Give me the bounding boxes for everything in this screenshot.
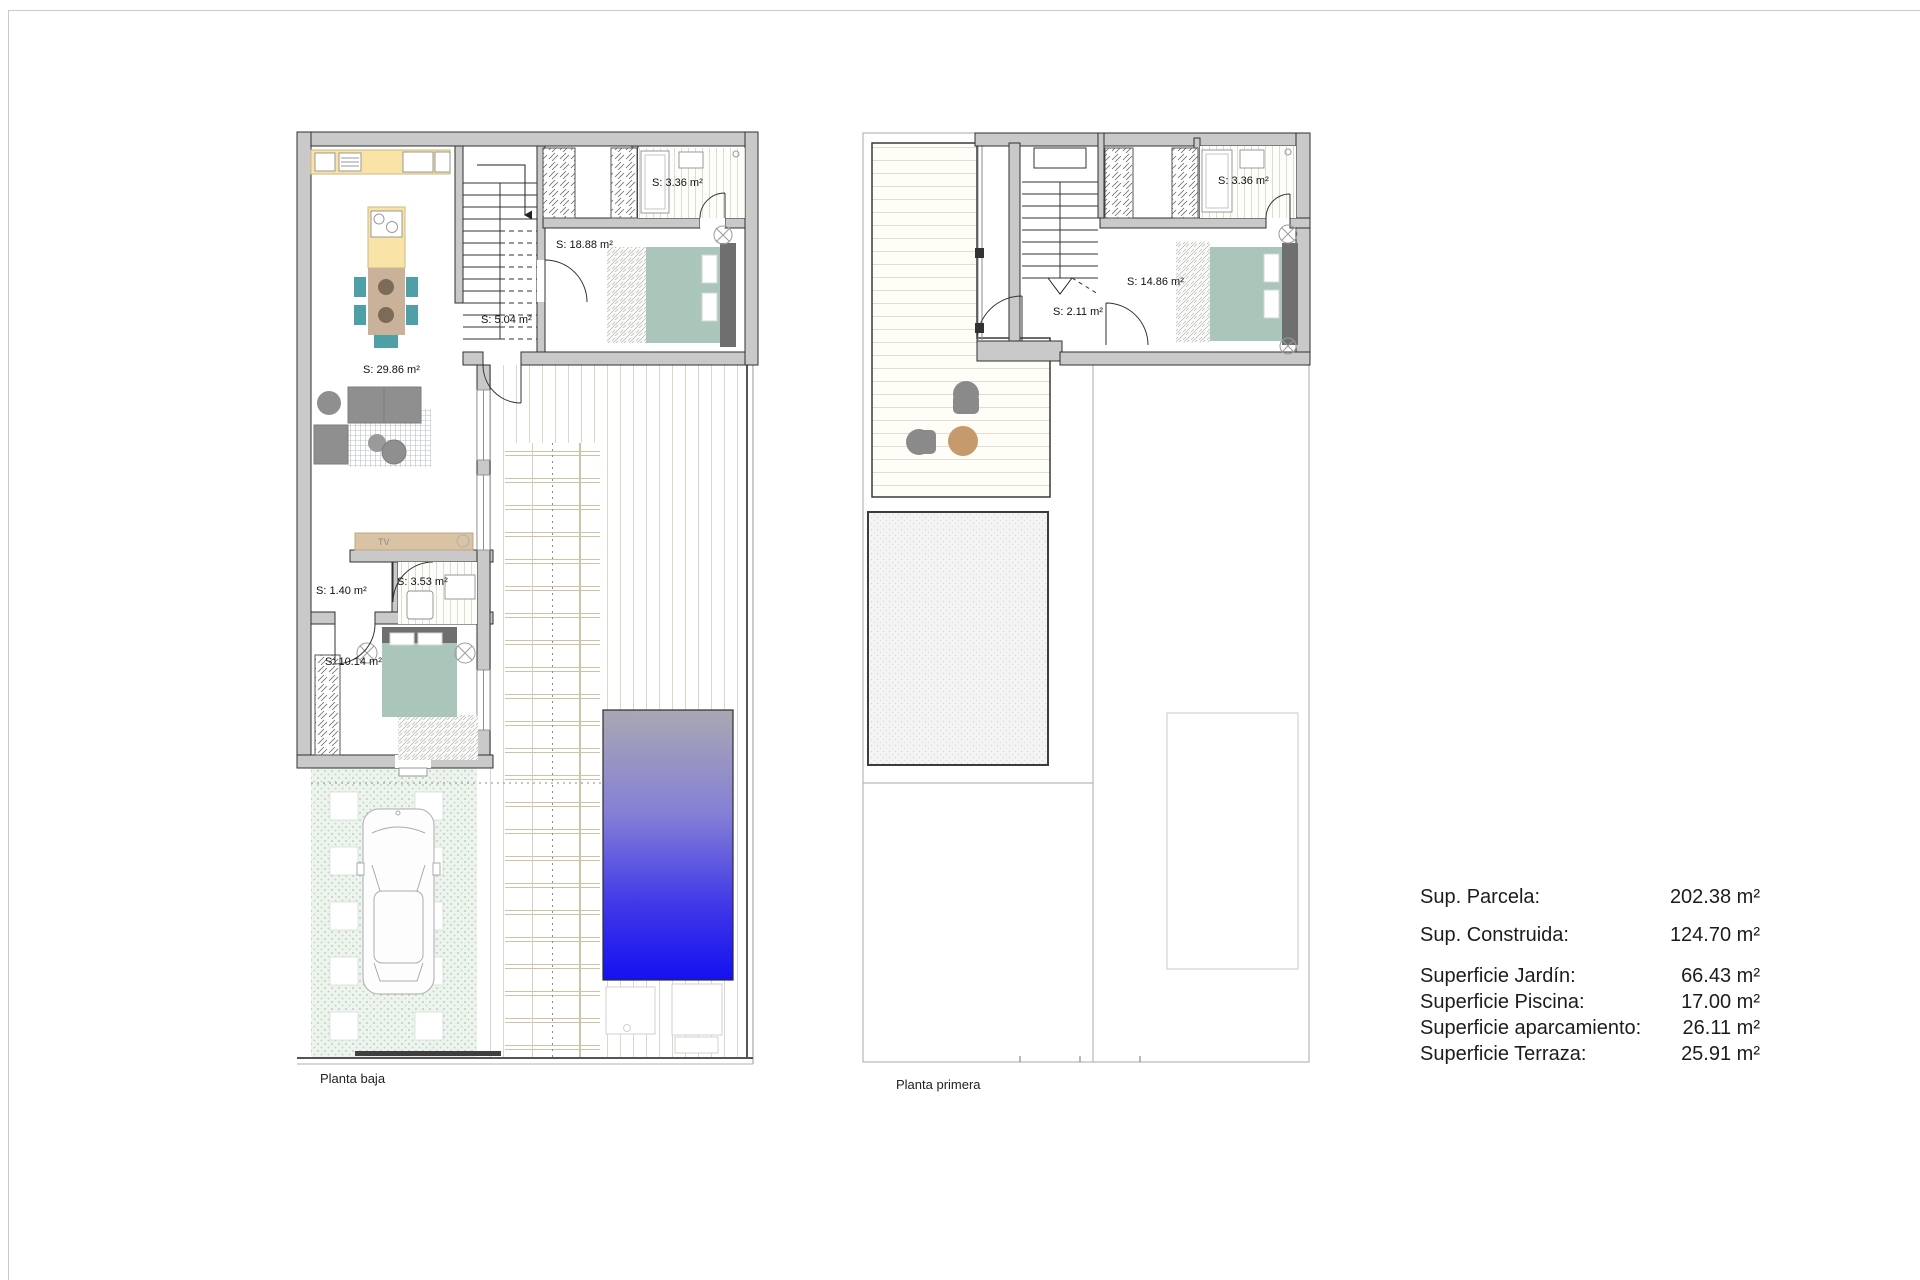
summary-row-piscina: Superficie Piscina: 17.00 m² (1420, 989, 1760, 1015)
summary-row-aparcamiento: Superficie aparcamiento: 26.11 m² (1420, 1015, 1760, 1041)
toilet (407, 591, 433, 619)
ceiling-light (714, 226, 732, 244)
chair (406, 277, 418, 297)
plate (378, 307, 394, 323)
area-label-bedroom-lower: S: 10.14 m² (325, 656, 382, 668)
wardrobe (1172, 148, 1198, 218)
summary-row-construida: Sup. Construida: 124.70 m² (1420, 922, 1760, 948)
ground-floor-plan: TV S: 29.86 m² S: 18.88 m² S: 5.04 m² S:… (295, 125, 765, 1070)
pool (603, 710, 733, 980)
summary-label: Sup. Parcela: (1420, 884, 1540, 910)
wardrobe (315, 655, 340, 755)
summary-value: 124.70 m² (1670, 922, 1760, 948)
armchair (317, 391, 341, 415)
sheet-frame-left-line (8, 10, 9, 1280)
dining-table (354, 268, 418, 348)
sink (403, 152, 433, 172)
tv-cabinet: TV (355, 533, 473, 550)
floorplan-sheet: { "ground_floor": { "caption": "Planta b… (0, 0, 1920, 1280)
summary-label: Sup. Construida: (1420, 922, 1569, 948)
area-label-bathroom-lower: S: 3.53 m² (397, 576, 448, 588)
summary-row-parcela: Sup. Parcela: 202.38 m² (1420, 884, 1760, 910)
summary-value: 25.91 m² (1681, 1041, 1760, 1067)
summary-row-terraza: Superficie Terraza: 25.91 m² (1420, 1041, 1760, 1067)
first-floor-plan: S: 2.11 m² S: 14.86 m² S: 3.36 m² (858, 108, 1318, 1078)
sheet-frame-top-line (8, 10, 1920, 11)
living-room (314, 387, 431, 467)
summary-value: 17.00 m² (1681, 989, 1760, 1015)
terrace-chair (906, 429, 936, 455)
area-label-landing: S: 2.11 m² (1053, 306, 1103, 318)
terrace-table (948, 426, 978, 456)
tv-label: TV (378, 537, 390, 547)
kitchen-counter (311, 150, 450, 174)
chair (354, 277, 366, 297)
summary-label: Superficie Terraza: (1420, 1041, 1586, 1067)
bathroom-sink (445, 575, 475, 599)
rug (1176, 242, 1210, 342)
chair (354, 305, 366, 325)
bathroom-lower (398, 562, 477, 624)
bedroom-first (1176, 225, 1298, 354)
summary-row-jardin: Superficie Jardín: 66.43 m² (1420, 963, 1760, 989)
kitchen-island (368, 207, 405, 268)
area-label-bedroom-first: S: 14.86 m² (1127, 276, 1184, 288)
first-floor-caption: Planta primera (896, 1077, 981, 1092)
bed (382, 643, 457, 717)
wardrobe (543, 148, 575, 218)
ground-floor-caption: Planta baja (320, 1071, 385, 1086)
pillow (390, 633, 414, 645)
area-label-hall-upper: S: 5.04 m² (481, 314, 532, 326)
garden-gate (355, 1051, 501, 1056)
rug (398, 715, 478, 760)
pillow (702, 293, 717, 321)
surface-summary: Sup. Parcela: 202.38 m² Sup. Construida:… (1420, 884, 1760, 1067)
staircase-first (1022, 148, 1098, 294)
pouf (382, 440, 406, 464)
oven (339, 153, 361, 171)
chair (374, 335, 398, 348)
area-label-bathroom-first: S: 3.36 m² (1218, 175, 1269, 187)
ceiling-light (455, 643, 475, 663)
plate (378, 279, 394, 295)
headboard (1282, 243, 1298, 345)
entrance-step (399, 768, 427, 776)
stair-direction-arrow (1048, 278, 1072, 294)
summary-label: Superficie Jardín: (1420, 963, 1576, 989)
rug (607, 247, 646, 343)
wardrobe (611, 148, 637, 218)
fridge (315, 153, 335, 171)
area-label-living: S: 29.86 m² (363, 364, 420, 376)
bathroom-sink (679, 152, 703, 168)
summary-group-gap (1420, 948, 1760, 963)
pillow (1264, 290, 1279, 318)
terrace-chair (953, 381, 979, 414)
pillow (418, 633, 442, 645)
summary-value: 26.11 m² (1683, 1015, 1760, 1041)
pillow (702, 255, 717, 283)
car-outline (357, 809, 440, 994)
bedroom-lower (315, 627, 478, 760)
summary-label: Superficie Piscina: (1420, 989, 1585, 1015)
bedroom-main (607, 226, 736, 347)
headboard (720, 243, 736, 347)
pillow (1264, 254, 1279, 282)
summary-label: Superficie aparcamiento: (1420, 1015, 1641, 1041)
area-label-hall-lower: S: 1.40 m² (316, 585, 367, 597)
ceiling-light (1279, 225, 1297, 243)
bathroom-sink (1240, 150, 1264, 168)
wardrobe (1105, 148, 1133, 218)
summary-value: 66.43 m² (1681, 963, 1760, 989)
area-label-bedroom-main: S: 18.88 m² (556, 239, 613, 251)
area-label-bathroom-upper: S: 3.36 m² (652, 177, 703, 189)
pool-below-outline (1167, 713, 1298, 969)
staircase-ground (463, 165, 537, 339)
roof-skylight-area (868, 512, 1048, 765)
cooktop (371, 211, 402, 237)
summary-value: 202.38 m² (1670, 884, 1760, 910)
chair (406, 305, 418, 325)
sofa (314, 425, 348, 464)
